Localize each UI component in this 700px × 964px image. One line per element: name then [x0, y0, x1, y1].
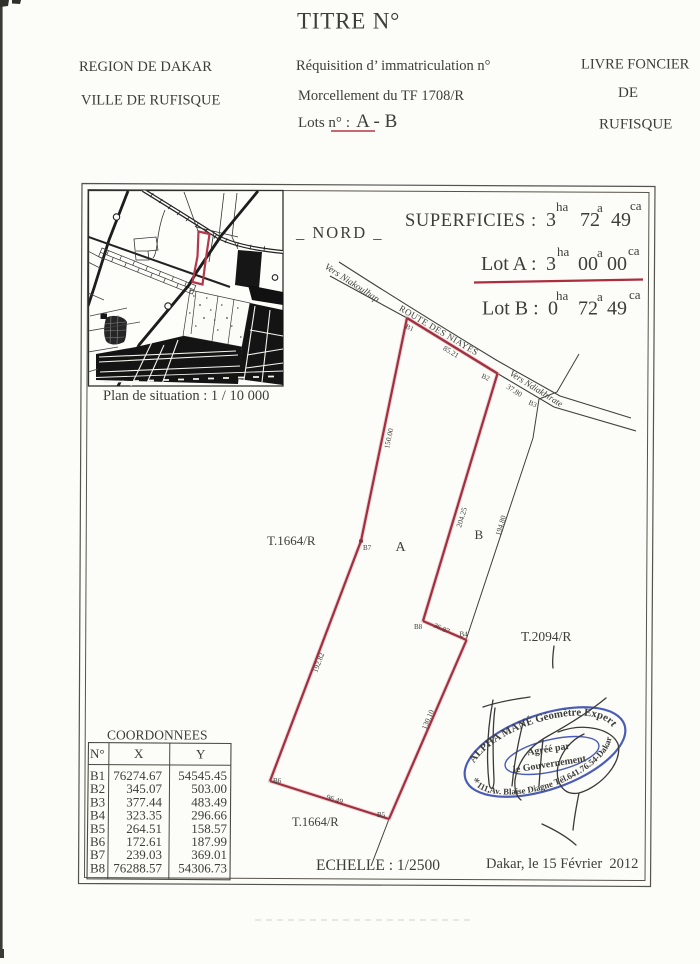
svg-text:TITRE N°: TITRE N° [297, 9, 400, 34]
svg-text:B2: B2 [480, 372, 491, 383]
svg-text:3: 3 [546, 209, 556, 231]
svg-text:Y: Y [196, 747, 206, 762]
svg-text:Réquisition d’ immatriculation: Réquisition d’ immatriculation n° [296, 58, 491, 74]
svg-text:49: 49 [611, 209, 631, 231]
svg-text:A: A [396, 540, 407, 555]
svg-text:T.2094/R: T.2094/R [521, 629, 571, 644]
svg-text:SUPERFICIES :: SUPERFICIES : [405, 211, 537, 231]
svg-text:_ NORD _: _ NORD _ [295, 223, 384, 242]
svg-text:ha: ha [556, 199, 569, 214]
svg-text:ha: ha [557, 244, 570, 259]
svg-text:72: 72 [578, 298, 598, 320]
svg-text:Lots n°:A - B: Lots n°:A - B [298, 111, 397, 132]
svg-text:a: a [597, 245, 603, 260]
svg-text:96.49: 96.49 [325, 792, 344, 806]
svg-text:B: B [475, 527, 484, 542]
svg-text:REGION DE DAKAR: REGION DE DAKAR [79, 59, 212, 75]
svg-text:76288.57: 76288.57 [113, 860, 162, 875]
svg-text:194.80: 194.80 [493, 514, 508, 537]
svg-text:Lot B :: Lot B : [482, 298, 539, 320]
svg-text:B7: B7 [363, 544, 372, 552]
svg-text:DE: DE [618, 85, 638, 101]
svg-text:B6: B6 [273, 777, 282, 785]
svg-text:B4: B4 [460, 631, 469, 639]
svg-text:ca: ca [630, 198, 642, 213]
svg-text:COORDONNEES: COORDONNEES [107, 728, 208, 743]
svg-text:VILLE DE RUFISQUE: VILLE DE RUFISQUE [81, 93, 220, 109]
svg-text:Plan de situation : 1 / 10 000: Plan de situation : 1 / 10 000 [103, 388, 269, 404]
svg-text:B8: B8 [414, 623, 423, 631]
svg-text:X: X [134, 746, 144, 761]
svg-text:ha: ha [556, 288, 569, 303]
svg-text:ca: ca [628, 243, 640, 258]
svg-text:192.82: 192.82 [310, 651, 326, 674]
svg-text:ECHELLE : 1/2500: ECHELLE : 1/2500 [316, 857, 440, 874]
svg-text:Dakar, le 15 Février 2012: Dakar, le 15 Février 2012 [486, 856, 638, 872]
svg-text:Lot A :: Lot A : [481, 253, 537, 275]
svg-text:ca: ca [629, 287, 641, 302]
svg-text:a: a [597, 200, 603, 215]
svg-text:49: 49 [607, 298, 627, 320]
svg-text:T.1664/R: T.1664/R [292, 815, 339, 829]
svg-text:a: a [597, 289, 603, 304]
svg-text:T.1664/R: T.1664/R [267, 533, 316, 548]
svg-text:B3: B3 [527, 399, 538, 410]
svg-text:3: 3 [546, 253, 556, 275]
svg-text:B5: B5 [377, 811, 386, 819]
svg-text:54306.73: 54306.73 [178, 860, 227, 875]
svg-text:00: 00 [607, 253, 627, 275]
svg-text:00: 00 [578, 253, 598, 275]
svg-text:LIVRE FONCIER: LIVRE FONCIER [581, 57, 690, 73]
svg-text:B8: B8 [90, 860, 105, 875]
svg-text:Morcellement du TF 1708/R: Morcellement du TF 1708/R [298, 88, 464, 104]
svg-text:N°: N° [90, 746, 105, 761]
svg-text:RUFISQUE: RUFISQUE [599, 117, 672, 133]
